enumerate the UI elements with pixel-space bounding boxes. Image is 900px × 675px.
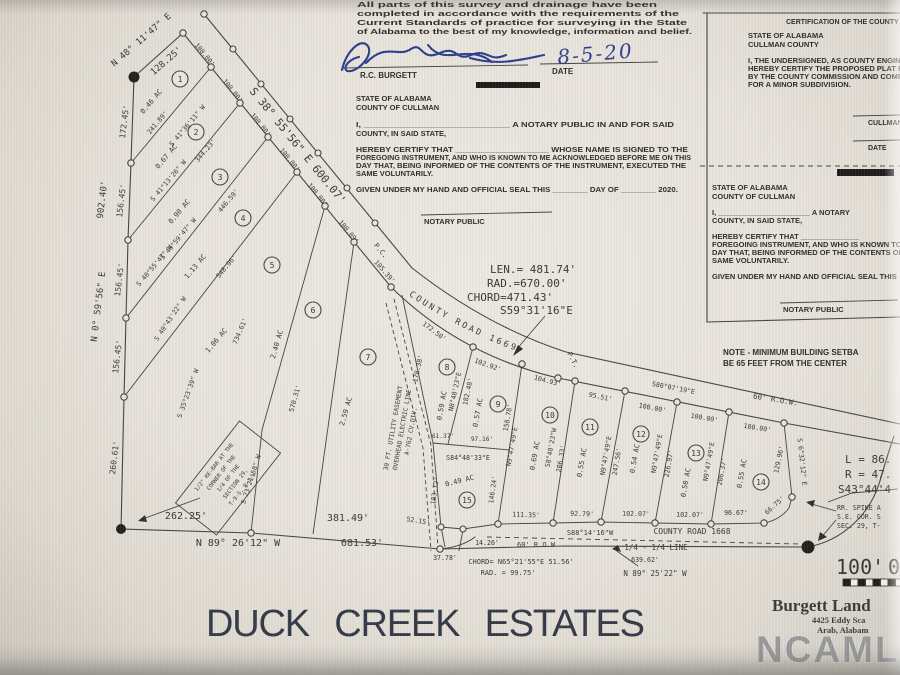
lot-badge: 5 [264,257,280,273]
scale-label: 100' [836,555,884,579]
lot-badge: 10 [542,407,558,423]
acreage-label: 0.55 AC [736,458,749,488]
dim-label: 241.89' [145,109,169,135]
dim-label: S88°14'16"W [567,529,614,537]
dim-label: 681.53' [341,538,383,549]
lot-badge: 4 [235,210,251,226]
curve-rad: RAD.=670.00' [487,277,566,290]
notary-line: GIVEN UNDER MY HAND AND OFFICIAL SEAL TH… [356,185,678,194]
dim-label: 381.49' [327,513,369,524]
acreage-label: 0.57 AC [472,397,485,427]
notary-sig-label: NOTARY PUBLIC [424,217,485,226]
dim-label: 96.67' [724,509,748,517]
lot-num: 11 [585,423,595,432]
dim-label: 100.09' [337,218,361,245]
cert-line: of Alabama to the best of my knowledge, … [357,27,692,36]
plat-photo: 1 2 3 4 5 6 7 8 9 10 11 12 13 14 15 0.46… [0,0,900,675]
dim-label: 548.96' [214,253,238,279]
dim-label: S 35°23'39" W [176,368,201,419]
lot-num: 8 [445,363,450,372]
dim-label: 344.23' [193,137,217,163]
scale-checker [843,579,900,586]
dim-label: 102.07' [676,511,704,519]
lot-num: 10 [545,411,555,420]
county-cert-box: CERTIFICATION OF THE COUNTY STATE OF ALA… [700,13,900,322]
dim-label: S84°48'33"E [446,454,490,462]
dim-label: 182.48' [461,377,475,406]
dim-label: 570.31' [287,384,302,413]
dim-label: N 89° 26'12" W [196,538,281,549]
dim-label: 206.37' [716,457,729,486]
acreage-label: 0.46 AC [139,88,164,116]
dim-label: 260.61' [108,440,121,475]
dim-label: 100.00' [221,77,245,104]
dim-label: 100.00' [690,412,719,425]
dim-label: RAD. = 99.75' [481,569,536,577]
curve-l: L = 86. [845,453,891,466]
dim-label: 52.15' [406,515,431,527]
acreage-label: 0.54 AC [629,443,642,473]
dim-label: 95.51' [588,391,613,404]
notary-line: COUNTY, IN SAID STATE, [356,129,446,138]
scale-zero: 0 [888,555,900,579]
lot-num: 9 [496,400,501,409]
dim-label: 100.00' [743,422,772,434]
road-label: COUNTY ROAD 1668 [653,527,730,536]
acreage-label: 0.50 AC [680,467,693,497]
dim-label: S 40°43'22" W [153,295,189,342]
dim-label: 226.97' [663,449,676,478]
dim-label: 734.61' [231,317,249,346]
cert-title: CERTIFICATION OF THE COUNTY [786,19,899,26]
acreage-label: 1.13 AC [183,253,208,281]
note-line: BE 65 FEET FROM THE CENTER [723,359,847,368]
monument-note: RR. SPIKE A [837,504,881,512]
cert-line: All parts of this survey and drainage ha… [357,0,658,9]
dim-label: 14.26' [475,539,499,547]
notary-sig-label: NOTARY PUBLIC [783,305,844,314]
lot-num: 12 [636,430,646,439]
curve-bearing: S43°44'4 [838,483,891,496]
notary-line: SAME VOLUNTARILY. [712,256,789,265]
lot-num: 13 [691,449,701,458]
dim-label: 178.38' [411,354,425,383]
dim-label: 129.96' [772,445,786,474]
notary-line: I, _____________________________ A NOTAR… [356,120,675,129]
lot-num: 2 [194,128,199,137]
notary-state: STATE OF ALABAMA [712,183,788,192]
lot-badge: 1 [172,71,188,87]
plat-drawing: 1 2 3 4 5 6 7 8 9 10 11 12 13 14 15 0.46… [0,0,900,675]
lot-num: 5 [270,261,275,270]
signature-scrawl [342,43,544,71]
dim-label: 247.56' [611,447,624,476]
cert-county: CULLMAN COUNTY [748,40,819,49]
dim-label: 92.79' [570,510,594,519]
lot-num: 15 [462,496,472,505]
notary-state: STATE OF ALABAMA [356,94,432,103]
cert-state: STATE OF ALABAMA [748,31,824,40]
acreage-label: 1.06 AC [204,327,229,355]
lot-badge: 15 [459,492,475,508]
notary-left-block: STATE OF ALABAMA COUNTY OF CULLMAN I, __… [356,94,691,226]
notary-line: COUNTY, IN SAID STATE, [712,216,802,225]
dim-label: 37.78' [433,554,457,562]
redaction-bar [837,169,894,176]
acreage-label: 2.59 AC [338,396,354,427]
dim-label: S 6°32'12" E [796,438,809,486]
curve-bearing: S59°31'16"E [500,304,573,317]
cert-sig2-label: DATE [868,145,887,152]
curve-data-block: LEN.= 481.74' RAD.=670.00' CHORD=471.43'… [467,263,576,317]
dim-label: 105.39' [372,259,396,285]
dim-label: N9°47'49"E [702,441,717,482]
dim-label: 111.35' [512,511,540,520]
lot-num: 7 [366,353,371,362]
note-line: NOTE - MINIMUM BUILDING SETBA [723,348,859,357]
pc-marker: P.C. [372,242,389,260]
dim-label: 156.45' [113,262,126,297]
monument-note: S.E. COR. S [837,513,881,521]
dim-label: 60' R.O.W. [752,392,798,408]
acreage-label: 0.49 AC [444,474,475,489]
dim-label: 206.33' [555,444,568,473]
notary-county: COUNTY OF CULLMAN [356,103,439,112]
monument-dot-nw [129,72,140,83]
dim-label: 60' R.O.W [517,541,556,549]
pt-marker: P.T. [565,351,580,370]
notary-line: GIVEN UNDER MY HAND AND OFFICIAL SEAL TH… [712,272,897,281]
lot-badge: 3 [212,169,228,185]
dim-label: 639.62' [631,556,659,564]
notary-line: SAME VOLUNTARILY. [356,169,433,178]
lot-num: 14 [756,478,766,487]
curve-data-right: L = 86. R = 47. S43°44'4 RR. SPIKE A S.E… [837,453,891,530]
acreage-label: 0.69 AC [529,440,542,470]
dim-label: 97.16' [471,436,493,443]
dim-label: 446.59' [216,187,240,213]
dim-label: 262.25' [165,511,207,522]
watermark: NCAMLS [756,629,900,670]
lot-badge: 7 [360,349,376,365]
dim-label: 156.45' [115,183,128,218]
monument-dot-se [802,541,815,554]
easement-note: 30 FT. UTILITY EASEMENT OVERHEAD ELECTRI… [383,385,423,474]
dim-label: 102.07' [622,510,650,518]
scale-bar: 100' 0 [836,555,900,586]
acreage-label: 0.59 AC [436,390,449,420]
notary-county: COUNTY OF CULLMAN [712,192,795,201]
dim-label: N8°48'23"E [447,371,463,412]
dim-label: 100.00' [193,41,217,68]
signature-date: 8-5-20 [556,38,634,69]
acreage-label: 0.55 AC [576,447,589,477]
dim-label: 902.40' [96,180,111,219]
redaction-bar [476,82,540,88]
lot-badge: 12 [633,426,649,442]
dim-label: 66.75' [763,495,786,517]
lot-num: 1 [178,75,183,84]
dim-label: 61.37' [432,433,454,440]
curve-chord: CHORD=471.43' [467,291,553,304]
dim-label: 183.12' [429,476,441,505]
cert-line: Current Standards of practice for survey… [357,18,687,27]
lot-num: 4 [241,214,246,223]
dim-label: S 38° 55'56" E 600.07' [247,85,349,206]
cert-line: FOR A MINOR SUBDIVISION. [748,80,851,89]
lot-badge: 6 [305,302,321,318]
curve-r: R = 47. [845,468,891,481]
cert-line: completed in accordance with the require… [357,9,679,18]
lot-badge: 13 [688,445,704,461]
cert-sig1-label: CULLMAN [868,120,900,127]
dim-label: 156.45' [111,339,124,374]
curve-len: LEN.= 481.74' [490,263,576,276]
lot-badge: 11 [582,419,598,435]
dim-label: 102.92' [473,357,502,374]
dim-label: N 0° 59'56" E [90,271,109,342]
dim-label: N9°47'49"E [650,433,665,474]
lot-badge: 9 [490,396,506,412]
dim-label: CHORD= N65°21'55"E 51.56' [468,558,573,566]
surveyor-name: R.C. BURGETT [360,71,417,80]
monument-dot-sw [116,524,126,534]
surveyor-certification: All parts of this survey and drainage ha… [342,0,692,88]
firm-addr1: 4425 Eddy Sca [812,615,866,625]
lot-badge: 14 [753,474,769,490]
dim-label: 1/4 - 1/4 LINE [624,543,688,552]
plat-title: DUCK CREEK ESTATES [206,603,651,645]
firm-name: Burgett Land [772,596,871,615]
lot-num: 6 [311,306,316,315]
dim-label: 146.24' [487,475,499,504]
lot-num: 3 [218,173,223,182]
dim-label: S80°07'19"E [651,380,695,396]
dim-label: 172.45' [118,104,131,139]
lot-badge: 8 [439,359,455,375]
setback-note: NOTE - MINIMUM BUILDING SETBA BE 65 FEET… [723,348,859,368]
dim-label: N 89° 25'22" W [623,569,687,578]
monument-note: SEC. 29, T- [837,522,881,530]
dim-label: 100.00' [638,401,667,414]
